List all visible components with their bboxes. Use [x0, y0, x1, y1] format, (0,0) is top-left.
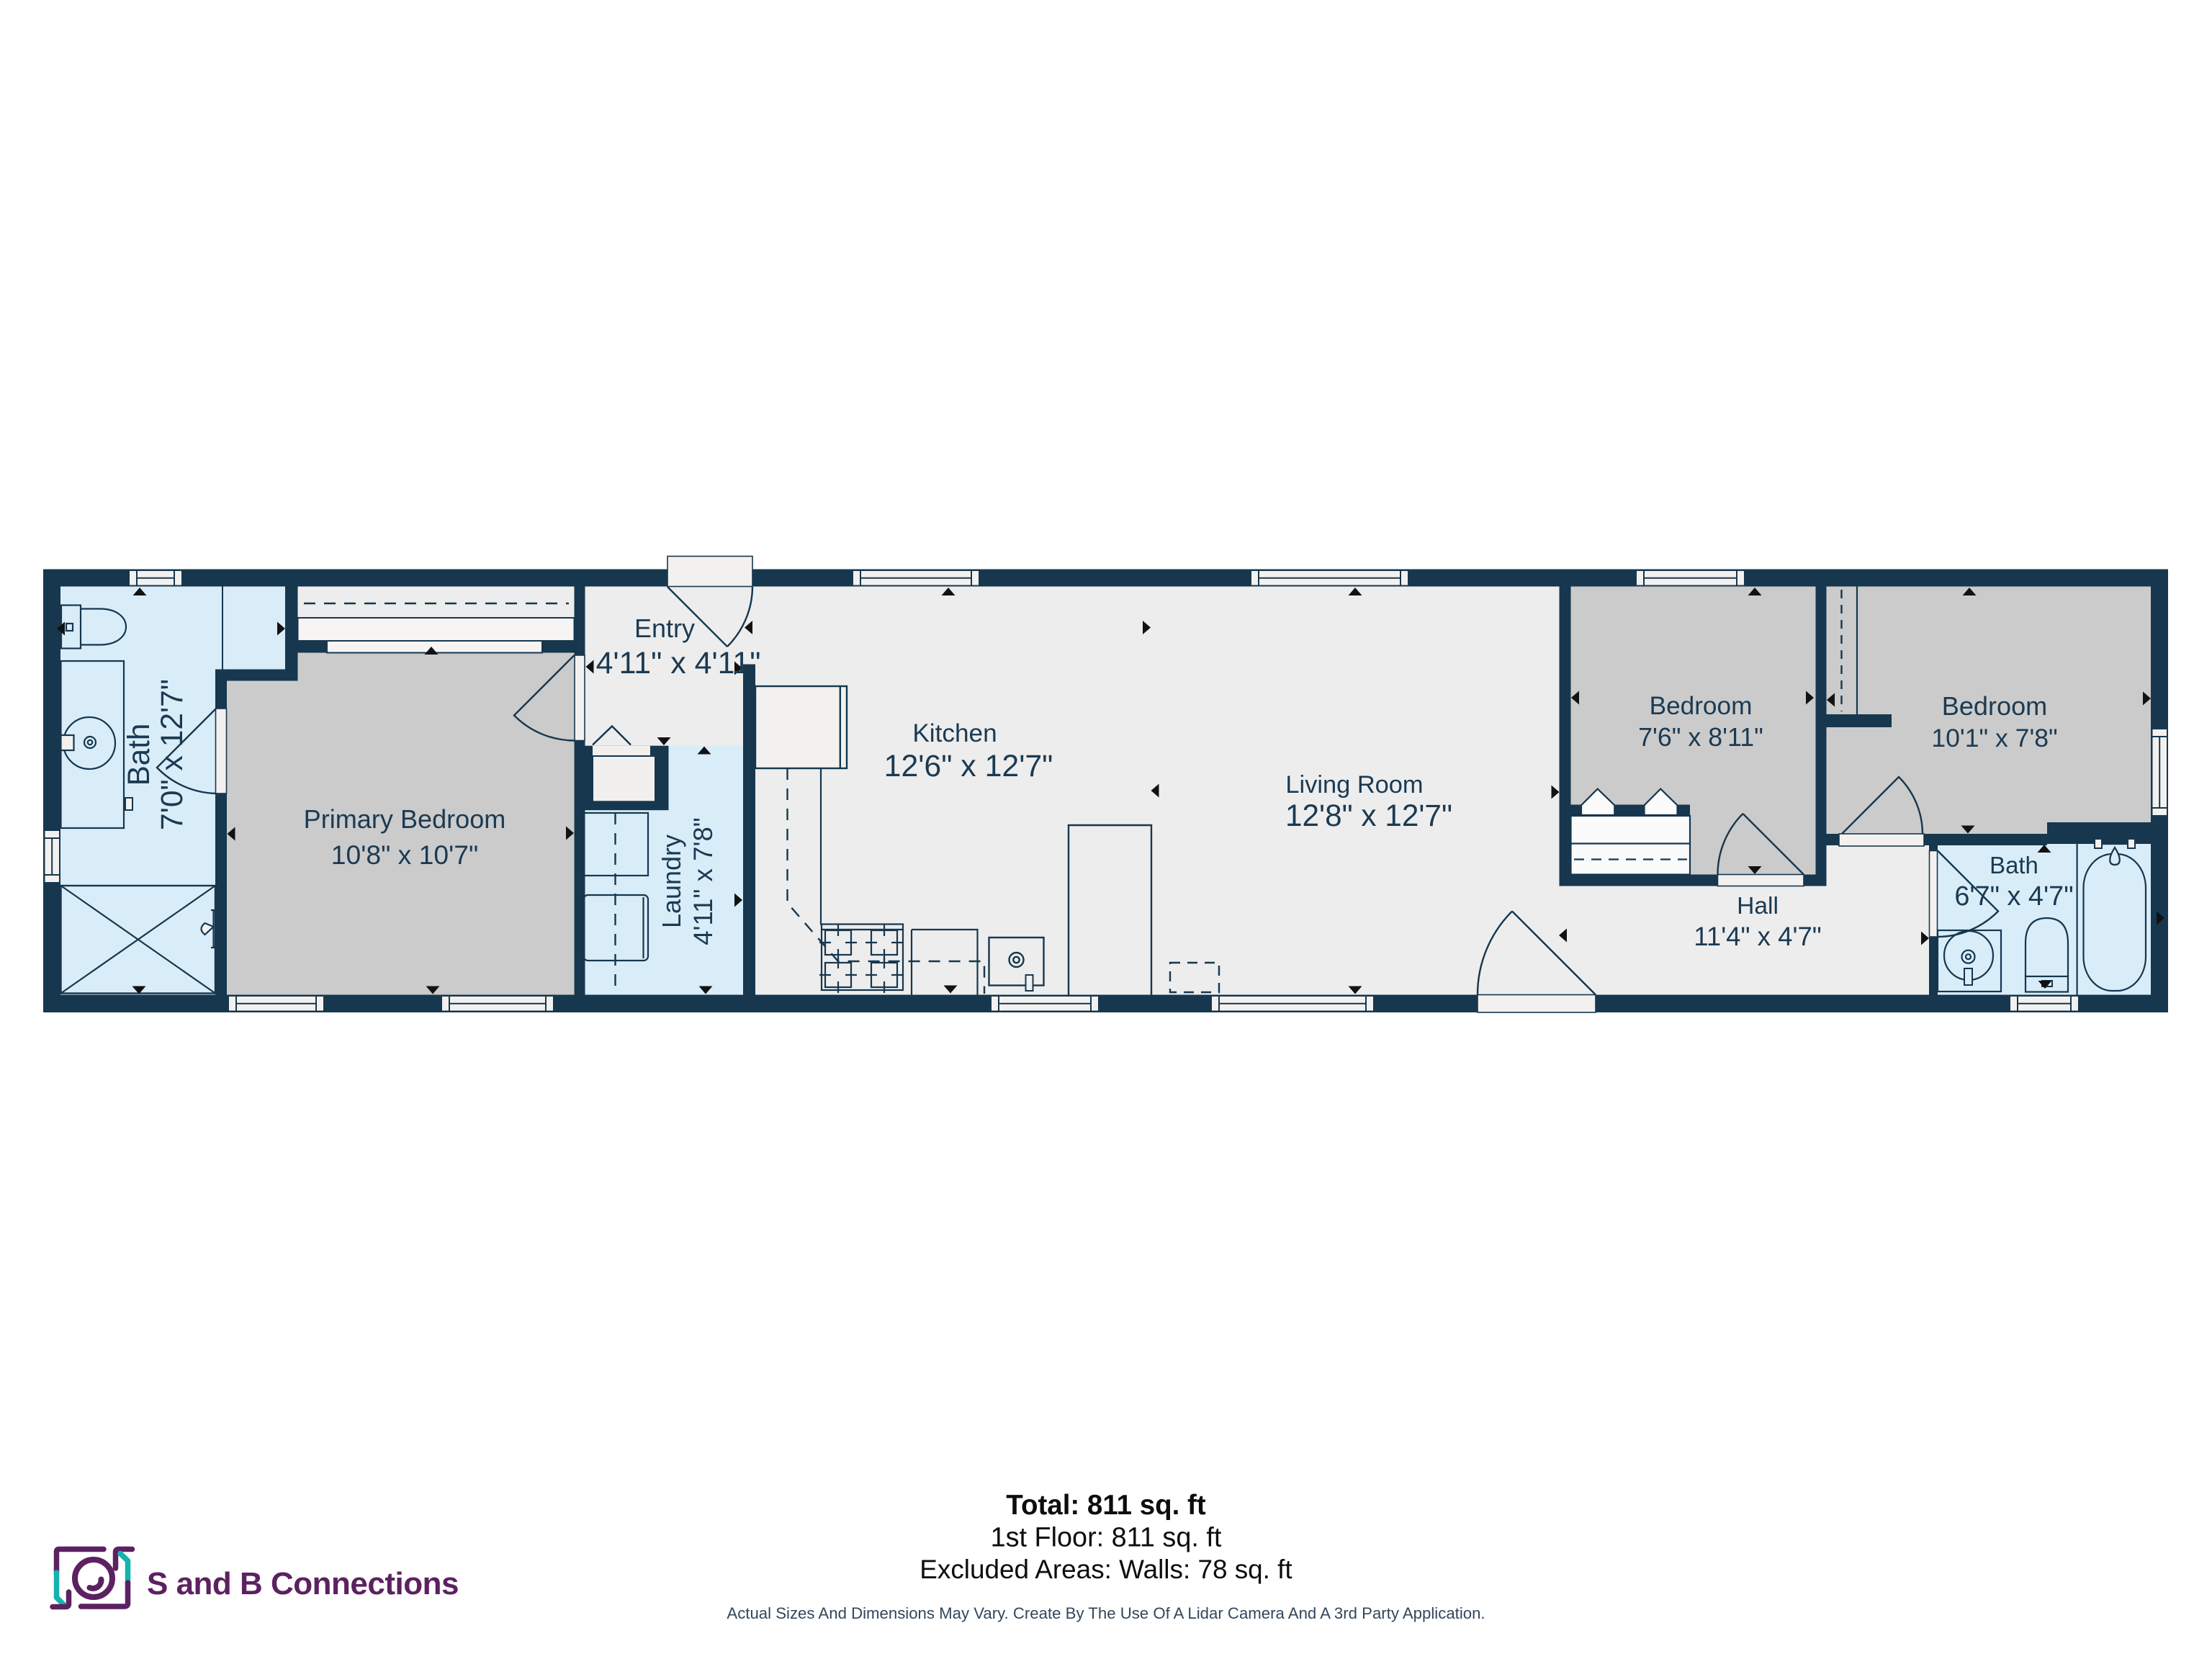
svg-text:S and B Connections: S and B Connections	[147, 1566, 459, 1601]
svg-text:Entry: Entry	[634, 613, 695, 643]
svg-text:11'4" x 4'7": 11'4" x 4'7"	[1694, 922, 1822, 951]
svg-text:Hall: Hall	[1737, 893, 1779, 920]
svg-text:Bath: Bath	[1990, 852, 2038, 878]
svg-text:Kitchen: Kitchen	[912, 719, 997, 747]
svg-text:12'8" x 12'7": 12'8" x 12'7"	[1285, 799, 1452, 832]
svg-text:Actual Sizes And Dimensions Ma: Actual Sizes And Dimensions May Vary. Cr…	[727, 1604, 1485, 1622]
svg-text:Total: 811 sq. ft: Total: 811 sq. ft	[1006, 1490, 1206, 1521]
svg-text:7'6" x 8'11": 7'6" x 8'11"	[1638, 723, 1763, 752]
svg-text:Primary Bedroom: Primary Bedroom	[304, 804, 506, 834]
svg-text:Bedroom: Bedroom	[1650, 692, 1753, 720]
svg-text:Excluded Areas: Walls: 78 sq.: Excluded Areas: Walls: 78 sq. ft	[920, 1555, 1292, 1584]
svg-text:12'6" x 12'7": 12'6" x 12'7"	[884, 749, 1053, 783]
svg-text:7'0" x 12'7": 7'0" x 12'7"	[155, 679, 189, 830]
svg-text:10'8" x 10'7": 10'8" x 10'7"	[331, 840, 479, 870]
svg-text:1st Floor: 811 sq. ft: 1st Floor: 811 sq. ft	[991, 1523, 1222, 1553]
svg-text:6'7" x 4'7": 6'7" x 4'7"	[1954, 881, 2073, 912]
svg-text:Laundry: Laundry	[657, 835, 686, 928]
svg-text:Bedroom: Bedroom	[1942, 691, 2047, 721]
svg-text:Living Room: Living Room	[1285, 771, 1423, 799]
svg-text:10'1" x 7'8": 10'1" x 7'8"	[1931, 724, 2057, 752]
svg-text:4'11" x 7'8": 4'11" x 7'8"	[688, 817, 718, 945]
svg-text:4'11" x 4'11": 4'11" x 4'11"	[596, 646, 761, 680]
svg-text:Bath: Bath	[122, 724, 156, 786]
